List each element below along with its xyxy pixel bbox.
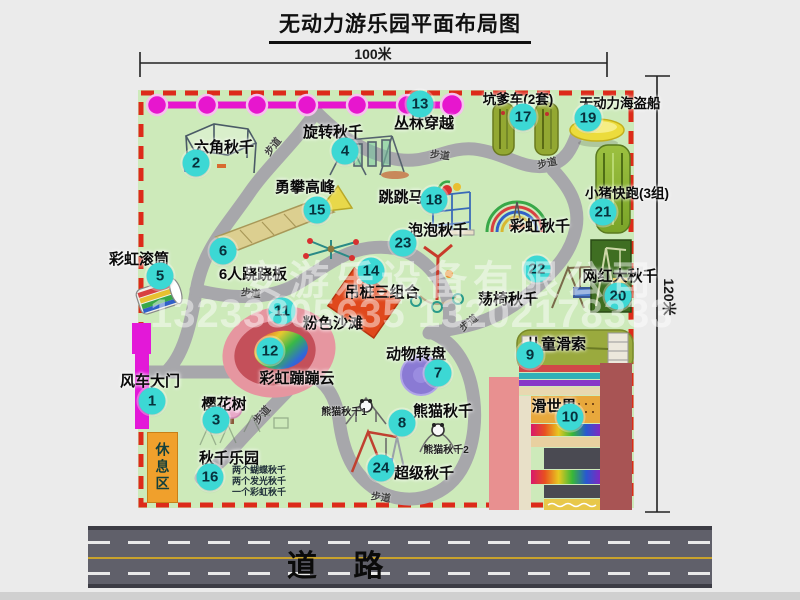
road-shoulder [0,592,800,600]
height-dimension-label: 120米 [659,278,679,315]
marker-17: 17 [510,104,537,131]
label-panda-swing-1: 熊猫秋千1 [321,403,367,418]
marker-22: 22 [524,256,551,283]
marker-7: 7 [425,360,452,387]
marker-10: 10 [557,404,584,431]
label-rainbow-swing: 彩虹秋千 [510,215,570,236]
marker-4: 4 [332,138,359,165]
label-climbing-peak: 勇攀高峰 [275,176,335,197]
marker-1: 1 [139,388,166,415]
marker-23: 23 [390,230,417,257]
marker-2: 2 [183,150,210,177]
marker-16: 16 [197,464,224,491]
road-center-line [88,557,712,559]
path-label: 步道 [370,487,392,505]
marker-21: 21 [590,199,617,226]
label-swing-chair: 荡椅秋千 [478,288,538,309]
windmill-gate-icon [132,323,151,354]
page-title: 无动力游乐园平面布局图 [269,8,531,44]
width-dimension-label: 100米 [354,44,391,64]
path-label: 步道 [240,283,261,300]
road: 道 路 [88,526,712,588]
marker-19: 19 [575,105,602,132]
marker-9: 9 [517,342,544,369]
marker-8: 8 [389,410,416,437]
path-label: 步道 [429,145,450,162]
label-rainbow-cloud: 彩虹蹦蹦云 [259,367,334,388]
swing-park-detail-line: 两个发光秋千 [232,476,286,487]
label-super-swing: 超级秋千 [394,462,454,483]
marker-18: 18 [421,187,448,214]
marker-11: 11 [269,298,296,325]
marker-14: 14 [358,258,385,285]
label-seesaw: 6人跷跷板 [219,263,287,284]
label-panda-swing: 熊猫秋千 [413,400,473,421]
marker-15: 15 [304,197,331,224]
swing-park-details: 两个蝴蝶秋千 两个发光秋千 一个彩虹秋千 [232,465,286,498]
marker-5: 5 [147,263,174,290]
label-rotating-swing: 旋转秋千 [303,121,363,142]
label-pink-beach: 粉色沙滩 [303,312,363,333]
marker-13: 13 [407,91,434,118]
label-bubble-swing: 泡泡秋千 [408,219,468,240]
marker-20: 20 [605,283,632,310]
label-panda-swing-2: 熊猫秋千2 [423,441,469,456]
marker-3: 3 [203,407,230,434]
marker-6: 6 [210,238,237,265]
rest-area: 休息区 [147,432,178,503]
road-label: 道 路 [287,541,397,585]
marker-12: 12 [257,338,284,365]
label-hanging-piles: 吊桩三组合 [344,281,419,302]
marker-24: 24 [368,455,395,482]
swing-park-detail-line: 一个彩虹秋千 [232,487,286,498]
swing-park-detail-line: 两个蝴蝶秋千 [232,465,286,476]
road-lane-line [88,541,712,544]
road-lane-line [88,572,712,575]
label-jumping-horse: 跳跳马 [378,186,423,207]
park-layout-map: 无动力游乐园平面布局图 100米 120米 [0,0,800,600]
